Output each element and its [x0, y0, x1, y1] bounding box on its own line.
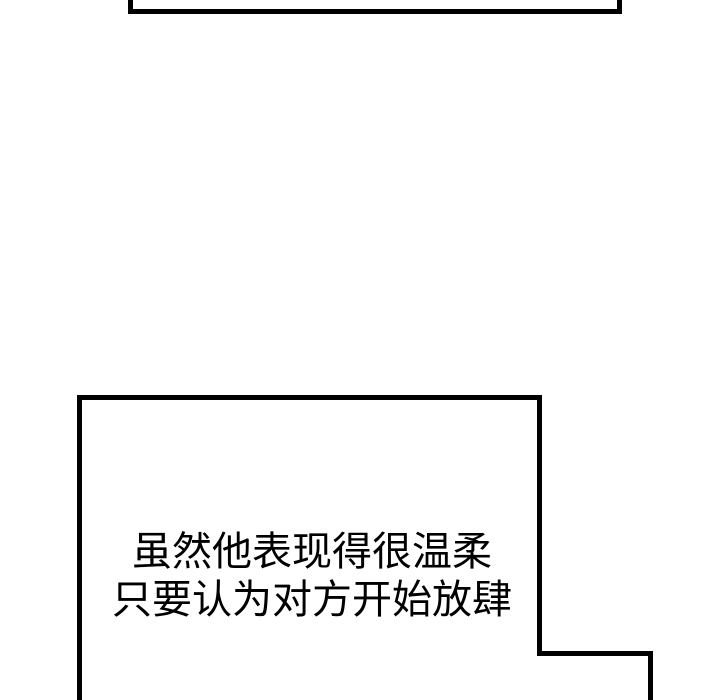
caption-panel-step-border	[537, 651, 653, 656]
top-panel-right-border	[617, 0, 622, 14]
caption-panel-top-border	[77, 395, 542, 400]
caption-line-2: 只要认为对方开始放肆	[82, 576, 542, 624]
caption-text: 虽然他表现得很温柔 只要认为对方开始放肆	[82, 528, 542, 624]
caption-panel-step-right-border	[648, 651, 653, 700]
top-panel-bottom-border	[128, 9, 622, 14]
comic-page: 虽然他表现得很温柔 只要认为对方开始放肆	[0, 0, 720, 700]
caption-line-1: 虽然他表现得很温柔	[82, 528, 542, 576]
